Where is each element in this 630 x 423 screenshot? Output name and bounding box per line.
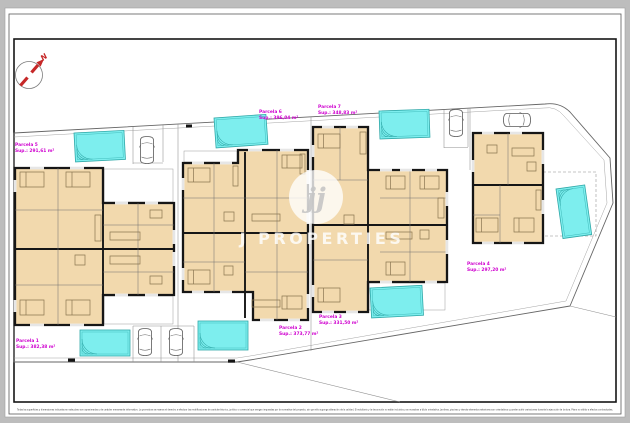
parcel-name: Parcela 4 <box>467 261 490 267</box>
parcel-name: Parcela 3 <box>319 314 342 320</box>
parcel-area: Sup.: 382,38 m² <box>16 344 55 350</box>
building-parcela-4 <box>473 133 543 243</box>
parcel-name: Parcela 7 <box>318 104 341 110</box>
parcel-area: Sup.: 348,83 m² <box>318 110 357 116</box>
terrace-outline <box>184 151 237 162</box>
gate-tick <box>186 125 192 128</box>
parcel-area: Sup.: 291,61 m² <box>15 148 54 154</box>
gate-tick <box>68 359 75 362</box>
watermark-wordmark: J PROPERTIES <box>239 229 405 248</box>
parcel-name: Parcela 1 <box>16 338 39 344</box>
pool-parcela-7 <box>379 109 430 139</box>
disclaimer-text: Todas las superficies y dimensiones indi… <box>16 408 613 412</box>
parcel-area: Sup.: 396,04 m² <box>259 115 298 121</box>
car-icon <box>504 112 531 127</box>
parcel-name: Parcela 5 <box>15 142 38 148</box>
site-plan-viewer: N <box>0 0 630 423</box>
terrace-outline <box>104 169 173 202</box>
site-plan-drawing: N <box>0 0 630 423</box>
car-icon <box>137 329 152 356</box>
parcel-area: Sup.: 297,20 m² <box>467 267 506 273</box>
car-icon <box>448 110 463 137</box>
gate-tick <box>228 360 235 363</box>
car-icon <box>168 329 183 356</box>
parcel-name: Parcela 2 <box>279 325 302 331</box>
parcel-name: Parcela 6 <box>259 109 282 115</box>
car-icon <box>139 137 154 164</box>
parcel-area: Sup.: 373,77 m² <box>279 331 318 337</box>
pool-parcela-3 <box>370 285 423 318</box>
pool-parcela-1 <box>80 330 130 356</box>
pool-parcela-5 <box>74 130 125 162</box>
pool-parcela-2 <box>198 321 248 350</box>
terrace-outline <box>104 296 173 324</box>
parcel-area: Sup.: 331,50 m² <box>319 320 358 326</box>
